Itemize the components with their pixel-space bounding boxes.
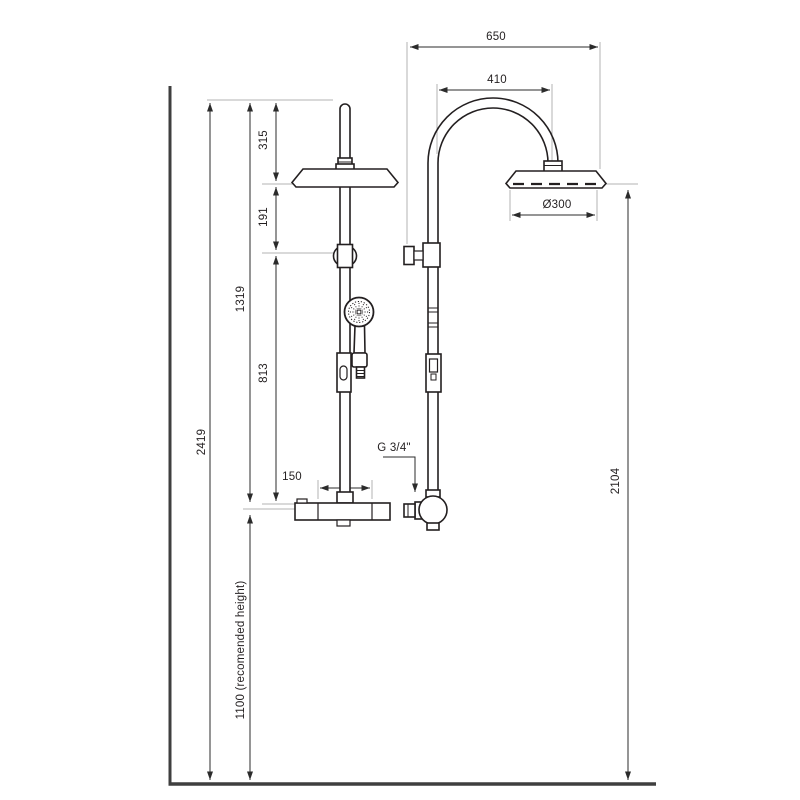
hand-shower-elbow xyxy=(352,353,367,367)
side-valve-body xyxy=(419,496,447,524)
mixer-pipe-nut xyxy=(337,492,353,503)
front-shower-head xyxy=(292,169,398,187)
dim-410-label: 410 xyxy=(487,74,507,86)
side-shower-head xyxy=(506,171,606,188)
dimension-lines xyxy=(210,47,628,780)
technical-drawing-page: 650 410 Ø300 315 191 813 1319 2419 1100 … xyxy=(0,0,800,800)
side-diverter-knob xyxy=(404,247,414,265)
mixer-body xyxy=(295,503,390,520)
g34-leader-line xyxy=(383,457,415,492)
dim-191-label: 191 xyxy=(258,207,270,227)
side-valve xyxy=(404,490,447,530)
shower-system-dimension-drawing xyxy=(0,0,800,800)
side-view xyxy=(404,98,606,530)
dim-813-label: 813 xyxy=(258,363,270,383)
extension-lines xyxy=(207,42,638,509)
dim-g34-label: G 3/4" xyxy=(377,442,410,454)
dim-1319-label: 1319 xyxy=(235,286,247,312)
dim-2104-label: 2104 xyxy=(610,468,622,494)
hand-shower-handle xyxy=(354,326,365,354)
dim-300-label: Ø300 xyxy=(543,199,572,211)
dim-650-label: 650 xyxy=(486,31,506,43)
front-view xyxy=(292,104,398,526)
side-diverter-body xyxy=(423,243,440,267)
dim-2419-label: 2419 xyxy=(196,429,208,455)
dim-150-label: 150 xyxy=(282,471,302,483)
thermostatic-mixer xyxy=(295,492,390,526)
front-slider-button xyxy=(340,366,347,380)
dim-315-label: 315 xyxy=(258,130,270,150)
dim-1100-label: 1100 (recomended height) xyxy=(235,581,247,720)
